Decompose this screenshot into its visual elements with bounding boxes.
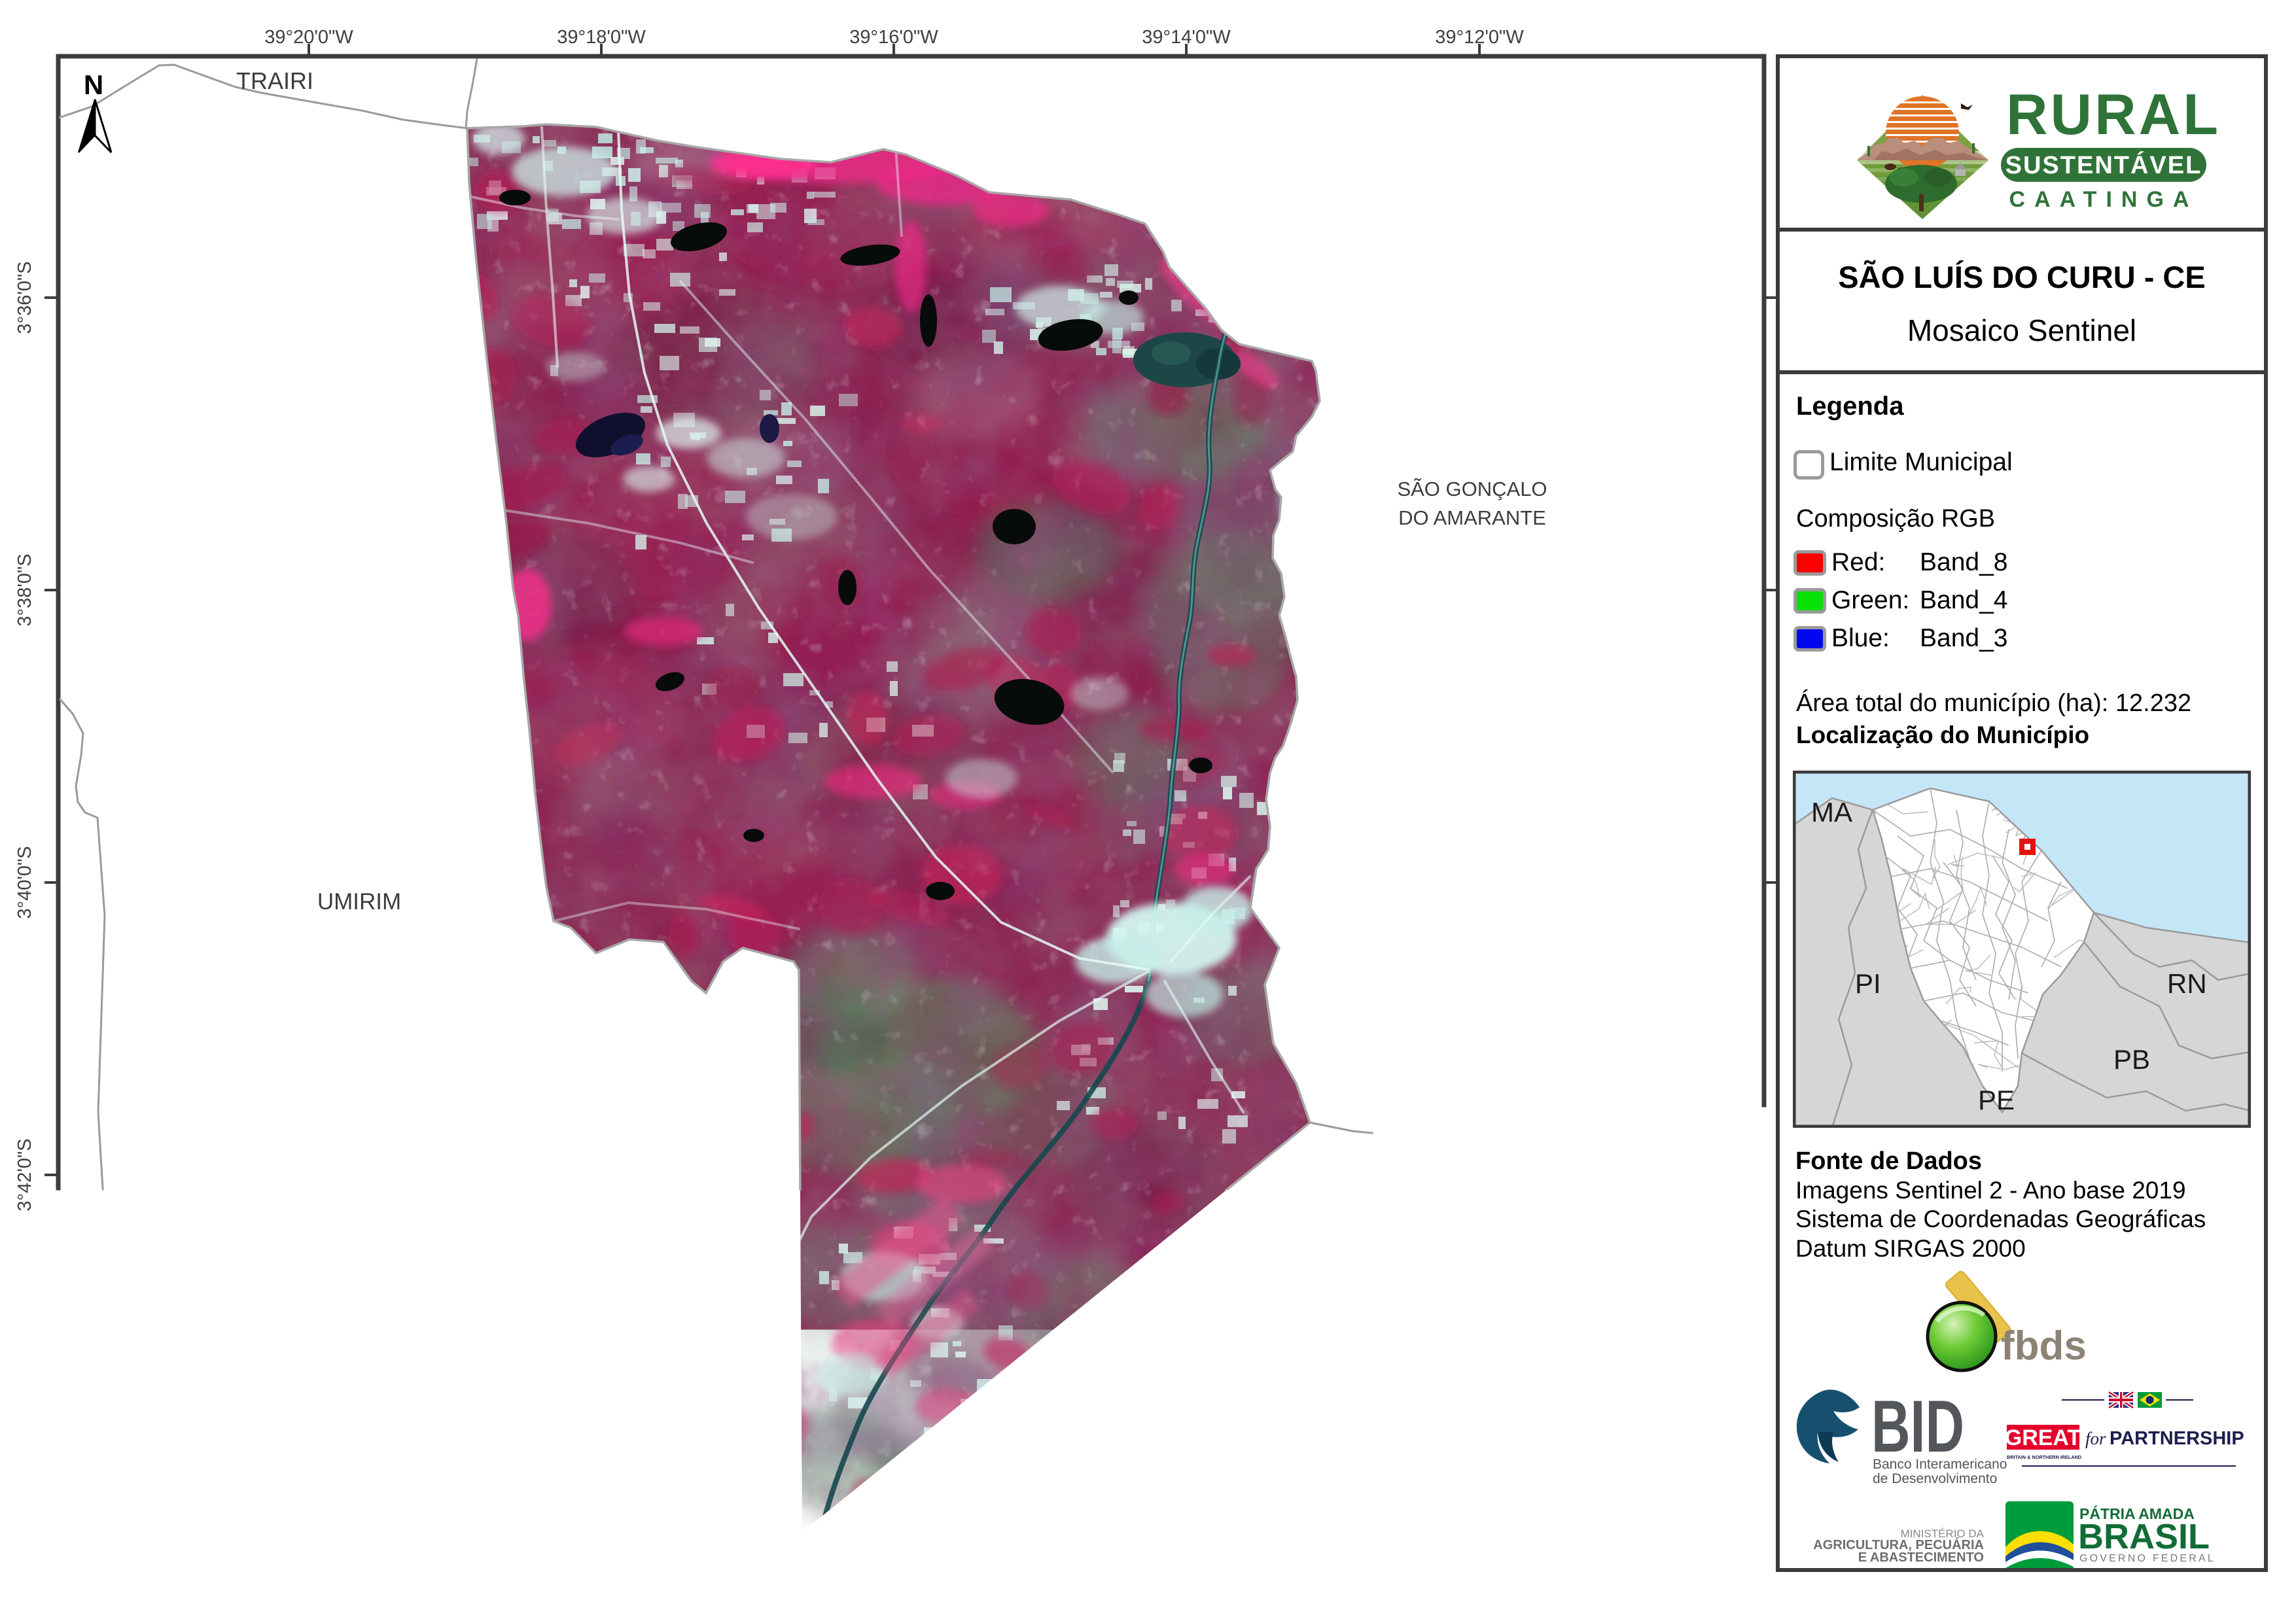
svg-text:3°42'0"S: 3°42'0"S [14,1138,35,1211]
svg-text:39°14'0"W: 39°14'0"W [1142,27,1231,48]
svg-text:RURAL: RURAL [2006,82,2221,147]
svg-text:39°14'0"W: 39°14'0"W [1142,1584,1231,1605]
svg-text:PE: PE [1978,1085,2015,1115]
svg-text:3°44'0"S: 3°44'0"S [14,1431,35,1503]
svg-text:N: N [84,69,103,100]
svg-text:39°12'0"W: 39°12'0"W [1435,1584,1524,1605]
svg-text:39°12'0"W: 39°12'0"W [1435,27,1524,48]
svg-text:0: 0 [77,1503,88,1524]
svg-text:3°40'0"S: 3°40'0"S [14,846,35,918]
svg-text:de Desenvolvimento: de Desenvolvimento [1873,1471,1997,1485]
svg-text:PI: PI [1855,968,1881,999]
svg-text:Banco Interamericano: Banco Interamericano [1873,1457,2007,1472]
svg-text:39°20'0"W: 39°20'0"W [264,27,353,48]
svg-text:UMIRIM: UMIRIM [317,889,401,915]
svg-text:PENTECOSTE: PENTECOSTE [1225,1345,1375,1370]
svg-text:39°18'0"W: 39°18'0"W [557,27,646,48]
svg-text:1: 1 [156,1503,167,1524]
svg-text:CAATINGA: CAATINGA [2009,187,2199,212]
svg-text:DO AMARANTE: DO AMARANTE [1398,506,1546,529]
svg-text:BRITAIN & NORTHERN IRELAND: BRITAIN & NORTHERN IRELAND [2007,1454,2081,1460]
svg-text:SÃO GONÇALO: SÃO GONÇALO [1397,478,1547,500]
svg-text:PARTNERSHIP: PARTNERSHIP [2110,1428,2244,1449]
svg-text:BRASIL: BRASIL [2078,1517,2210,1556]
svg-text:39°20'0"W: 39°20'0"W [264,1584,353,1605]
svg-text:fbds: fbds [2001,1323,2087,1369]
svg-text:GOVERNO FEDERAL: GOVERNO FEDERAL [2079,1553,2216,1564]
svg-text:RN: RN [2167,968,2207,999]
svg-text:2: 2 [235,1503,246,1524]
svg-text:for: for [2085,1429,2106,1448]
svg-text:TRAIRI: TRAIRI [236,67,313,94]
svg-text:SUSTENTÁVEL: SUSTENTÁVEL [2005,150,2202,179]
svg-text:MA: MA [1811,797,1852,828]
svg-text:3°38'0"S: 3°38'0"S [14,553,35,626]
svg-text:39°18'0"W: 39°18'0"W [557,1584,646,1605]
svg-text:3°36'0"S: 3°36'0"S [14,261,35,334]
svg-text:39°16'0"W: 39°16'0"W [849,1584,938,1605]
svg-text:GREAT: GREAT [2005,1425,2081,1450]
svg-text:PB: PB [2113,1044,2150,1075]
svg-text:BID: BID [1871,1386,1964,1467]
svg-text:4 km: 4 km [386,1503,429,1524]
svg-text:39°16'0"W: 39°16'0"W [849,27,938,48]
